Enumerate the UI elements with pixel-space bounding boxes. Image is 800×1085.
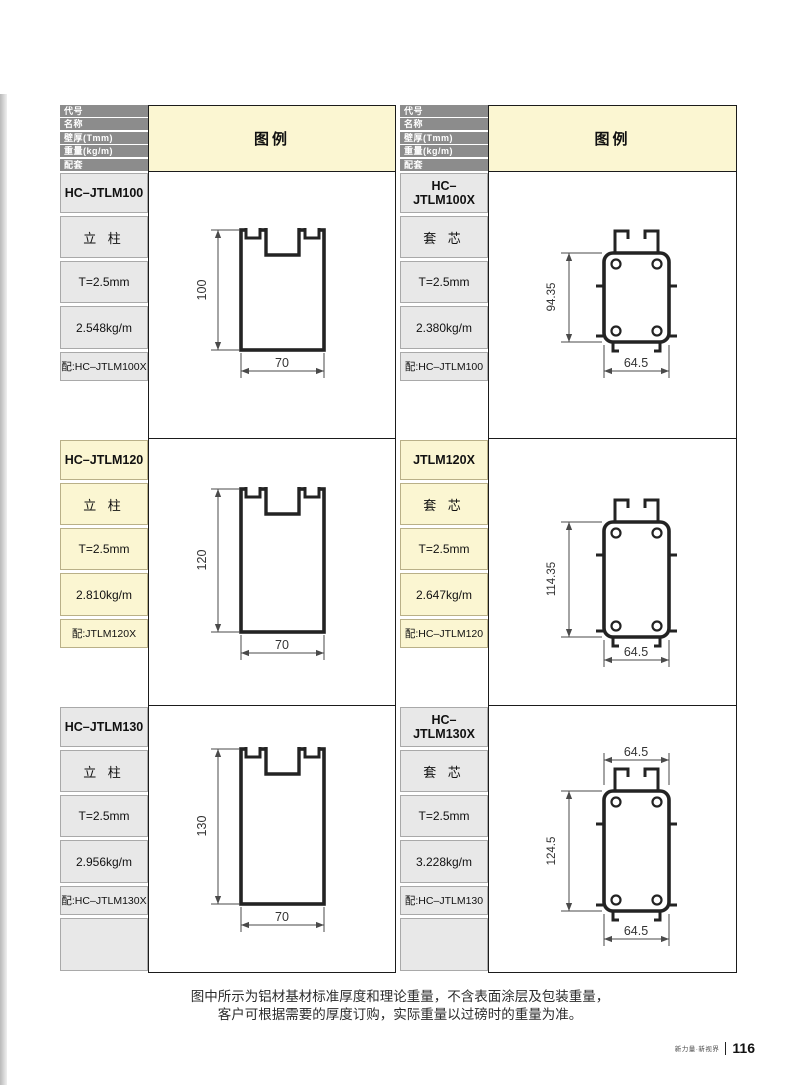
entry-thickness: T=2.5mm: [400, 795, 488, 837]
dim-height-label: 120: [195, 550, 209, 571]
filler-cell: [60, 918, 148, 971]
catalog-page: 代号 名称 壁厚(Tmm) 重量(kg/m) 配套 图例: [0, 0, 800, 1085]
header-row-match: 配套: [60, 159, 148, 171]
dim-height-label: 94.35: [546, 283, 558, 312]
entry-hc-jtlm130: 130 70 HC–JTLM130 立 柱 T=2.5mm 2.956kg/m …: [60, 705, 396, 973]
spec-table-right: 代号 名称 壁厚(Tmm) 重量(kg/m) 配套 图例: [400, 105, 737, 977]
dim-width-bottom-label: 64.5: [624, 924, 648, 938]
entry-match: 配:HC–JTLM100X: [60, 352, 148, 381]
profile-figure: 100 70: [148, 171, 396, 439]
entry-hc-jtlm130x: 64.5 124.5 64.5: [400, 705, 737, 973]
profile-figure: 120 70: [148, 438, 396, 706]
dim-width-label: 70: [275, 356, 289, 370]
spec-column: HC–JTLM130X 套 芯 T=2.5mm 3.228kg/m 配:HC–J…: [400, 705, 488, 971]
header-label-column: 代号 名称 壁厚(Tmm) 重量(kg/m) 配套: [60, 105, 148, 172]
entry-name: 套 芯: [400, 750, 488, 792]
entry-weight: 2.810kg/m: [60, 573, 148, 616]
legend-header-cell: 图例: [488, 105, 737, 172]
entry-match: 配:HC–JTLM130X: [60, 886, 148, 915]
dim-width-top-label: 64.5: [624, 745, 648, 759]
table-body: 94.35 64.5 HC–JTLM100X 套 芯 T=2.5mm 2.380…: [400, 171, 737, 973]
header-row-name: 名称: [60, 118, 148, 130]
header-row-code: 代号: [400, 105, 488, 117]
spec-column: JTLM120X 套 芯 T=2.5mm 2.647kg/m 配:HC–JTLM…: [400, 438, 488, 648]
profile-figure: 64.5 124.5 64.5: [488, 705, 737, 973]
dim-width-label: 64.5: [624, 645, 648, 659]
entry-thickness: T=2.5mm: [400, 528, 488, 570]
entry-weight: 2.548kg/m: [60, 306, 148, 349]
scan-edge-shadow: [0, 94, 7, 1085]
dim-height-label: 114.35: [546, 562, 558, 596]
header-row-thickness: 壁厚(Tmm): [400, 132, 488, 144]
page-number: 116: [732, 1040, 755, 1056]
entry-name: 立 柱: [60, 750, 148, 792]
entry-code: HC–JTLM120: [60, 440, 148, 480]
entry-code: JTLM120X: [400, 440, 488, 480]
header-row-weight: 重量(kg/m): [400, 145, 488, 157]
dim-width-label: 70: [275, 638, 289, 652]
entry-match: 配:HC–JTLM130: [400, 886, 488, 915]
profile-figure: 94.35 64.5: [488, 171, 737, 439]
entry-thickness: T=2.5mm: [60, 528, 148, 570]
footer-divider: [725, 1042, 726, 1055]
entry-weight: 2.647kg/m: [400, 573, 488, 616]
entry-name: 立 柱: [60, 483, 148, 525]
profile-drawing-sleeve-130x: 64.5 124.5 64.5: [489, 706, 735, 972]
profile-figure: 114.35 64.5: [488, 438, 737, 706]
dim-width-label: 64.5: [624, 356, 648, 370]
entry-match: 配:JTLM120X: [60, 619, 148, 648]
entry-code: HC–JTLM100: [60, 173, 148, 213]
dim-height-label: 124.5: [546, 837, 558, 866]
spec-column: HC–JTLM100X 套 芯 T=2.5mm 2.380kg/m 配:HC–J…: [400, 171, 488, 381]
dim-height-label: 100: [195, 280, 209, 301]
brand-slogan: 新力量·新视界: [675, 1043, 720, 1053]
entry-jtlm120x: 114.35 64.5 JTLM120X 套 芯 T=2.5mm 2.647kg…: [400, 438, 737, 706]
entry-match: 配:HC–JTLM100: [400, 352, 488, 381]
profile-drawing-mullion-130: 130 70: [149, 706, 395, 972]
legend-header-cell: 图例: [148, 105, 396, 172]
profile-drawing-sleeve-120x: 114.35 64.5: [489, 439, 735, 705]
entry-hc-jtlm100x: 94.35 64.5 HC–JTLM100X 套 芯 T=2.5mm 2.380…: [400, 171, 737, 439]
header-row-weight: 重量(kg/m): [60, 145, 148, 157]
footnote-line-1: 图中所示为铝材基材标准厚度和理论重量，不含表面涂层及包装重量，: [0, 988, 800, 1006]
entry-match: 配:HC–JTLM120: [400, 619, 488, 648]
header-row-name: 名称: [400, 118, 488, 130]
entry-weight: 3.228kg/m: [400, 840, 488, 883]
entry-weight: 2.380kg/m: [400, 306, 488, 349]
spec-column: HC–JTLM120 立 柱 T=2.5mm 2.810kg/m 配:JTLM1…: [60, 438, 148, 648]
entry-hc-jtlm100: 100 70 HC–JTLM100 立 柱 T=2.5mm 2.548kg/m …: [60, 171, 396, 439]
entry-weight: 2.956kg/m: [60, 840, 148, 883]
spec-table-left: 代号 名称 壁厚(Tmm) 重量(kg/m) 配套 图例: [60, 105, 396, 977]
profile-drawing-mullion-100: 100 70: [149, 172, 395, 438]
table-body: 100 70 HC–JTLM100 立 柱 T=2.5mm 2.548kg/m …: [60, 171, 396, 973]
dim-height-label: 130: [195, 816, 209, 837]
header-row-thickness: 壁厚(Tmm): [60, 132, 148, 144]
profile-drawing-sleeve-100x: 94.35 64.5: [489, 172, 735, 438]
profile-drawing-mullion-120: 120 70: [149, 439, 395, 705]
profile-figure: 130 70: [148, 705, 396, 973]
header-label-column: 代号 名称 壁厚(Tmm) 重量(kg/m) 配套: [400, 105, 488, 172]
filler-cell: [400, 918, 488, 971]
footnote: 图中所示为铝材基材标准厚度和理论重量，不含表面涂层及包装重量， 客户可根据需要的…: [0, 988, 800, 1024]
entry-code: HC–JTLM100X: [400, 173, 488, 213]
entry-code: HC–JTLM130X: [400, 707, 488, 747]
entry-thickness: T=2.5mm: [60, 261, 148, 303]
entry-thickness: T=2.5mm: [400, 261, 488, 303]
entry-name: 套 芯: [400, 483, 488, 525]
entry-thickness: T=2.5mm: [60, 795, 148, 837]
entry-name: 立 柱: [60, 216, 148, 258]
spec-column: HC–JTLM130 立 柱 T=2.5mm 2.956kg/m 配:HC–JT…: [60, 705, 148, 971]
entry-code: HC–JTLM130: [60, 707, 148, 747]
entry-hc-jtlm120: 120 70 HC–JTLM120 立 柱 T=2.5mm 2.810kg/m …: [60, 438, 396, 706]
spec-column: HC–JTLM100 立 柱 T=2.5mm 2.548kg/m 配:HC–JT…: [60, 171, 148, 381]
footnote-line-2: 客户可根据需要的厚度订购，实际重量以过磅时的重量为准。: [0, 1006, 800, 1024]
dim-width-label: 70: [275, 910, 289, 924]
page-footer: 新力量·新视界 116: [675, 1040, 755, 1056]
entry-name: 套 芯: [400, 216, 488, 258]
header-row-match: 配套: [400, 159, 488, 171]
header-row-code: 代号: [60, 105, 148, 117]
